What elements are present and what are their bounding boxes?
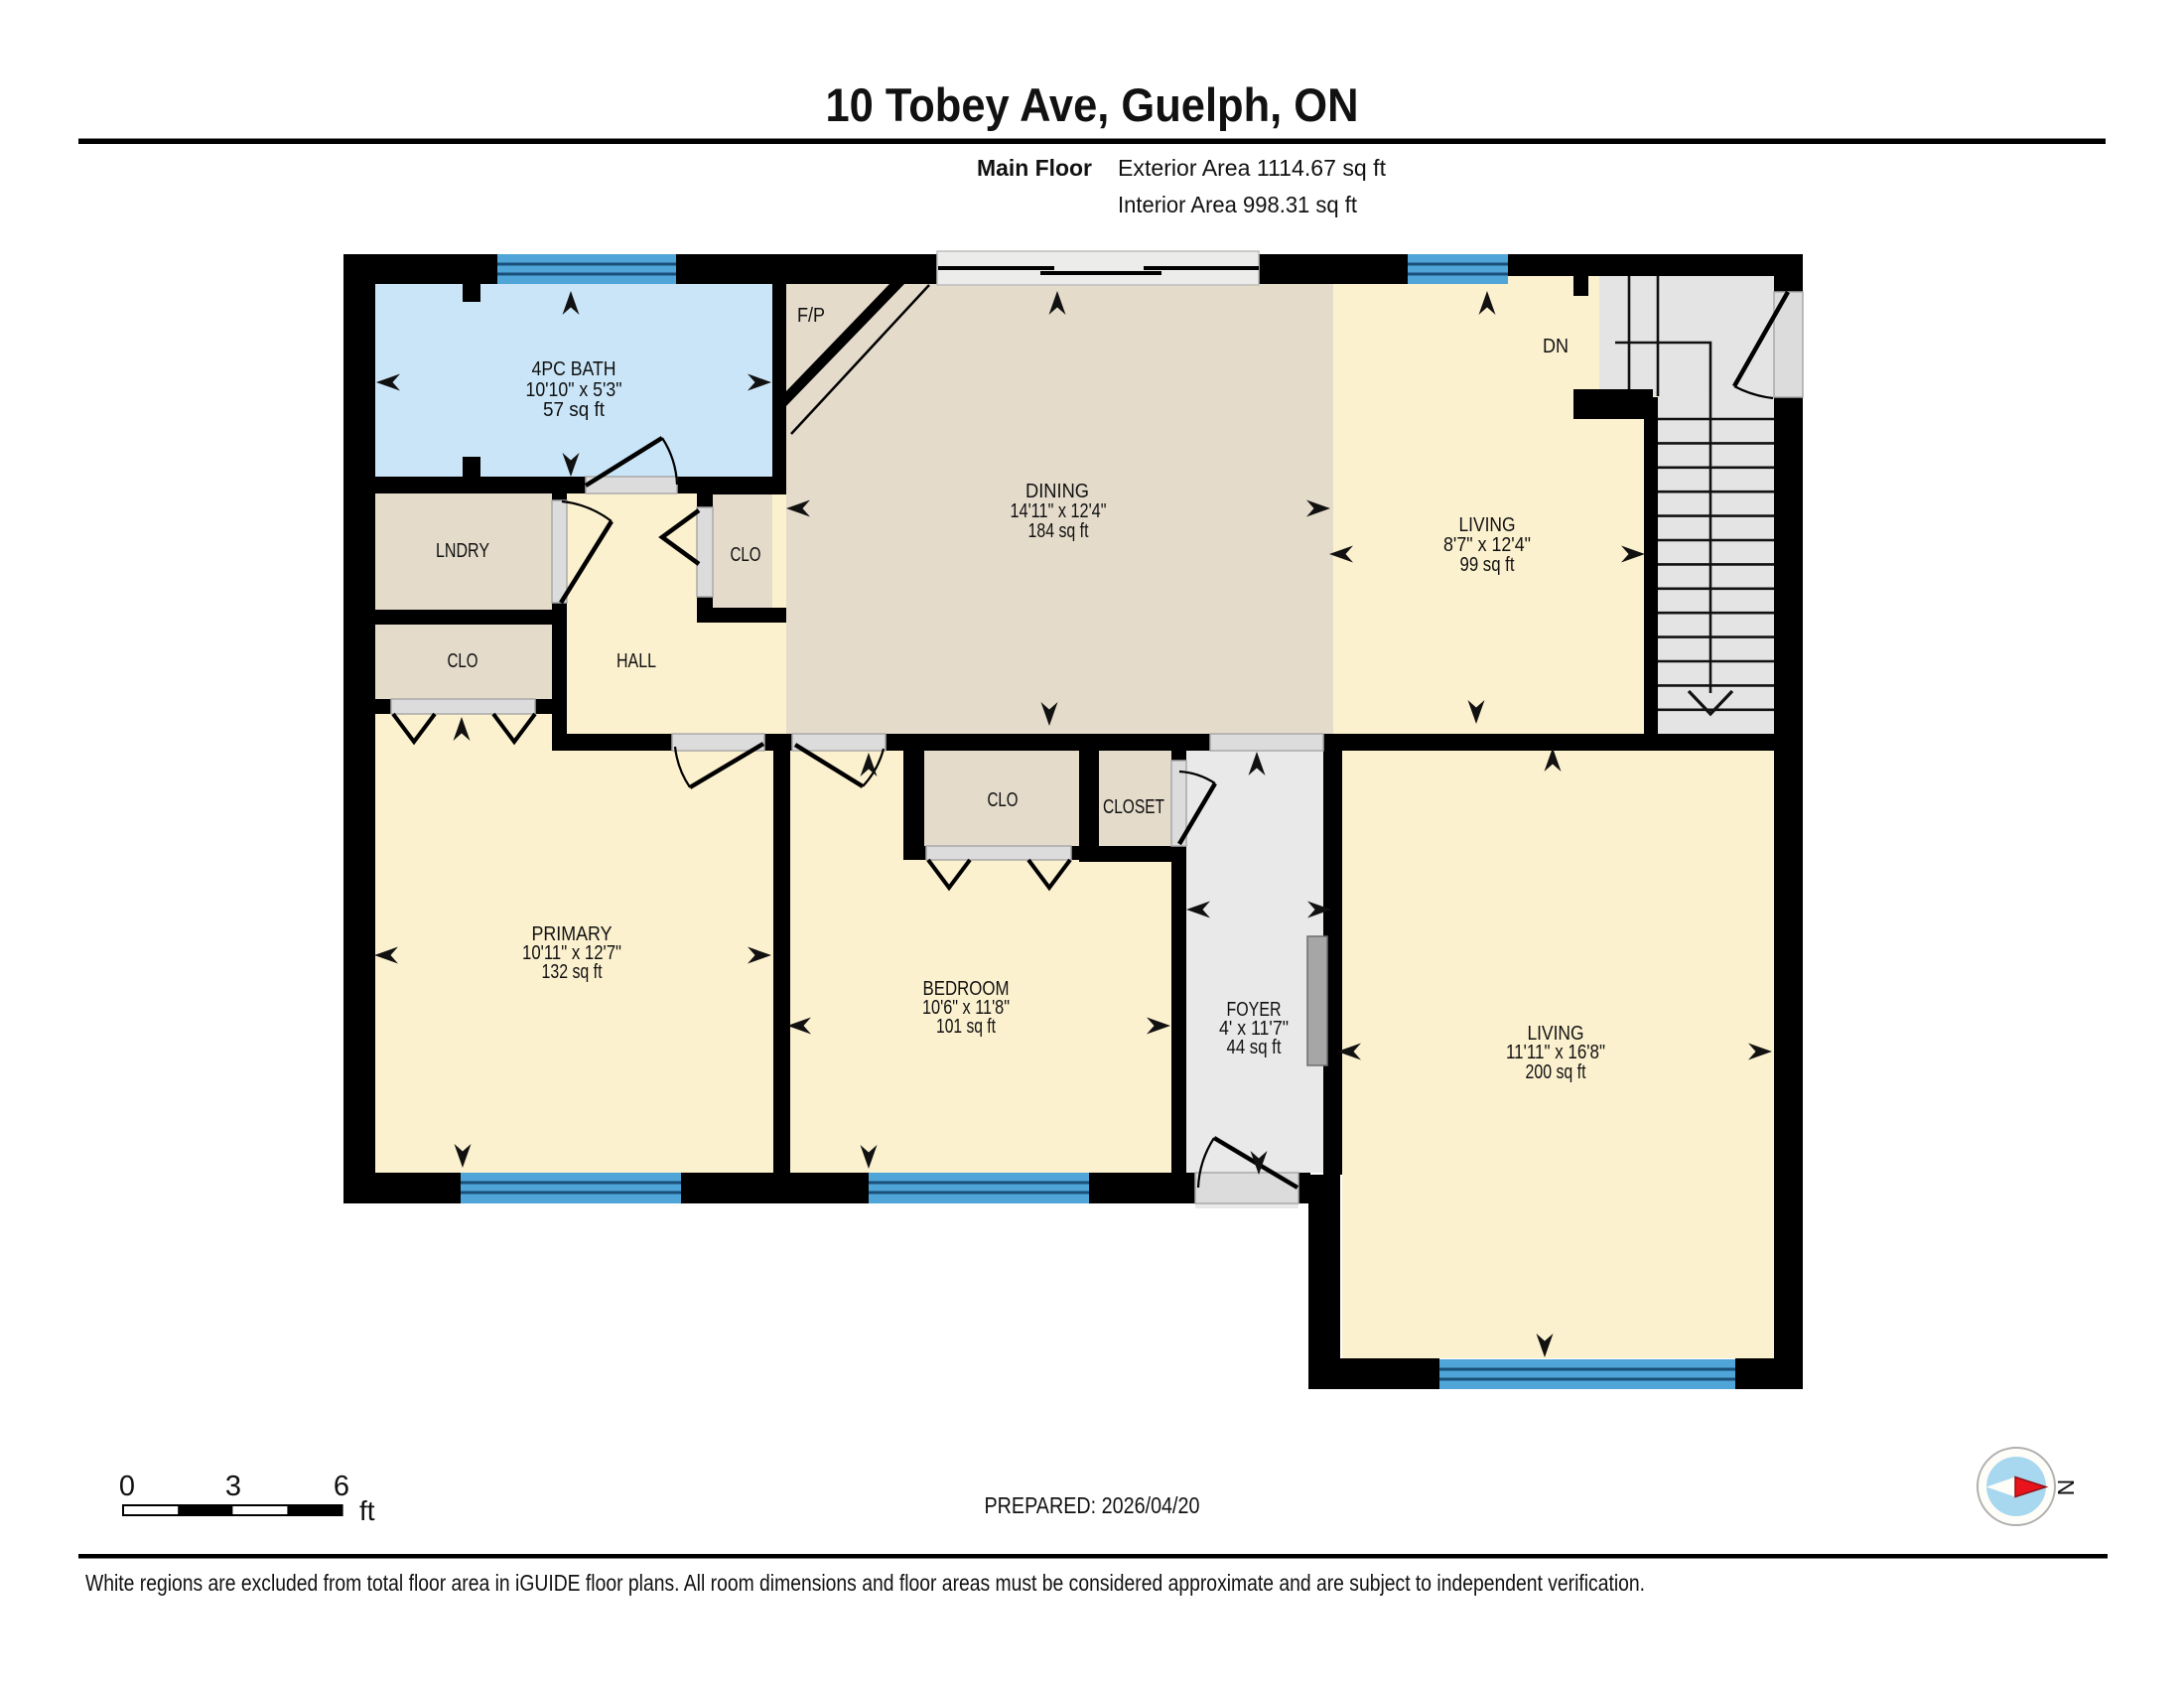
svg-text:CLO: CLO	[448, 650, 478, 672]
svg-text:6: 6	[334, 1471, 349, 1502]
svg-text:Exterior Area 1114.67 sq ft: Exterior Area 1114.67 sq ft	[1118, 155, 1387, 181]
svg-text:11'11" x 16'8": 11'11" x 16'8"	[1506, 1042, 1605, 1063]
svg-text:Main Floor: Main Floor	[977, 155, 1092, 181]
svg-text:4PC BATH: 4PC BATH	[532, 358, 616, 380]
svg-text:CLOSET: CLOSET	[1103, 796, 1164, 818]
svg-text:ft: ft	[359, 1495, 375, 1526]
svg-text:57 sq ft: 57 sq ft	[543, 399, 605, 421]
svg-text:DN: DN	[1543, 336, 1569, 357]
svg-text:99 sq ft: 99 sq ft	[1460, 554, 1515, 576]
svg-text:LNDRY: LNDRY	[436, 540, 489, 562]
svg-text:10'10" x 5'3": 10'10" x 5'3"	[526, 379, 622, 401]
svg-text:DINING: DINING	[1025, 481, 1089, 502]
svg-text:N: N	[2053, 1479, 2079, 1496]
svg-text:101 sq ft: 101 sq ft	[936, 1016, 996, 1038]
svg-text:PREPARED: 2026/04/20: PREPARED: 2026/04/20	[985, 1492, 1200, 1518]
svg-text:LIVING: LIVING	[1459, 514, 1516, 536]
svg-text:CLO: CLO	[731, 544, 761, 566]
svg-text:CLO: CLO	[988, 789, 1019, 811]
svg-text:HALL: HALL	[616, 650, 656, 672]
svg-text:14'11" x 12'4": 14'11" x 12'4"	[1011, 500, 1107, 522]
svg-text:8'7" x 12'4": 8'7" x 12'4"	[1443, 534, 1531, 556]
svg-text:10 Tobey Ave, Guelph, ON: 10 Tobey Ave, Guelph, ON	[826, 78, 1359, 131]
svg-text:184 sq ft: 184 sq ft	[1028, 520, 1089, 542]
svg-text:0: 0	[119, 1471, 135, 1502]
svg-text:Interior Area 998.31 sq ft: Interior Area 998.31 sq ft	[1118, 192, 1358, 217]
svg-text:200 sq ft: 200 sq ft	[1526, 1061, 1586, 1083]
svg-text:F/P: F/P	[797, 305, 825, 327]
svg-text:44 sq ft: 44 sq ft	[1227, 1037, 1282, 1058]
svg-text:3: 3	[225, 1471, 241, 1502]
svg-text:132 sq ft: 132 sq ft	[542, 961, 603, 983]
svg-text:White regions are excluded fro: White regions are excluded from total fl…	[85, 1570, 1645, 1596]
